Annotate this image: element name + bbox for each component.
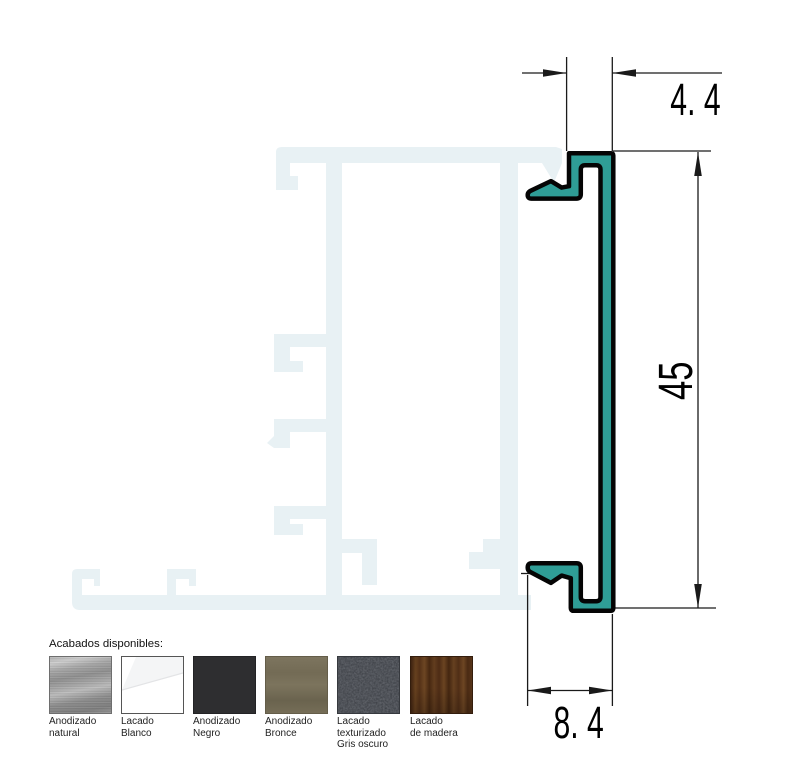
svg-text:8. 4: 8. 4	[554, 698, 604, 749]
svg-text:4. 4: 4. 4	[670, 75, 720, 126]
svg-text:45: 45	[648, 362, 702, 400]
